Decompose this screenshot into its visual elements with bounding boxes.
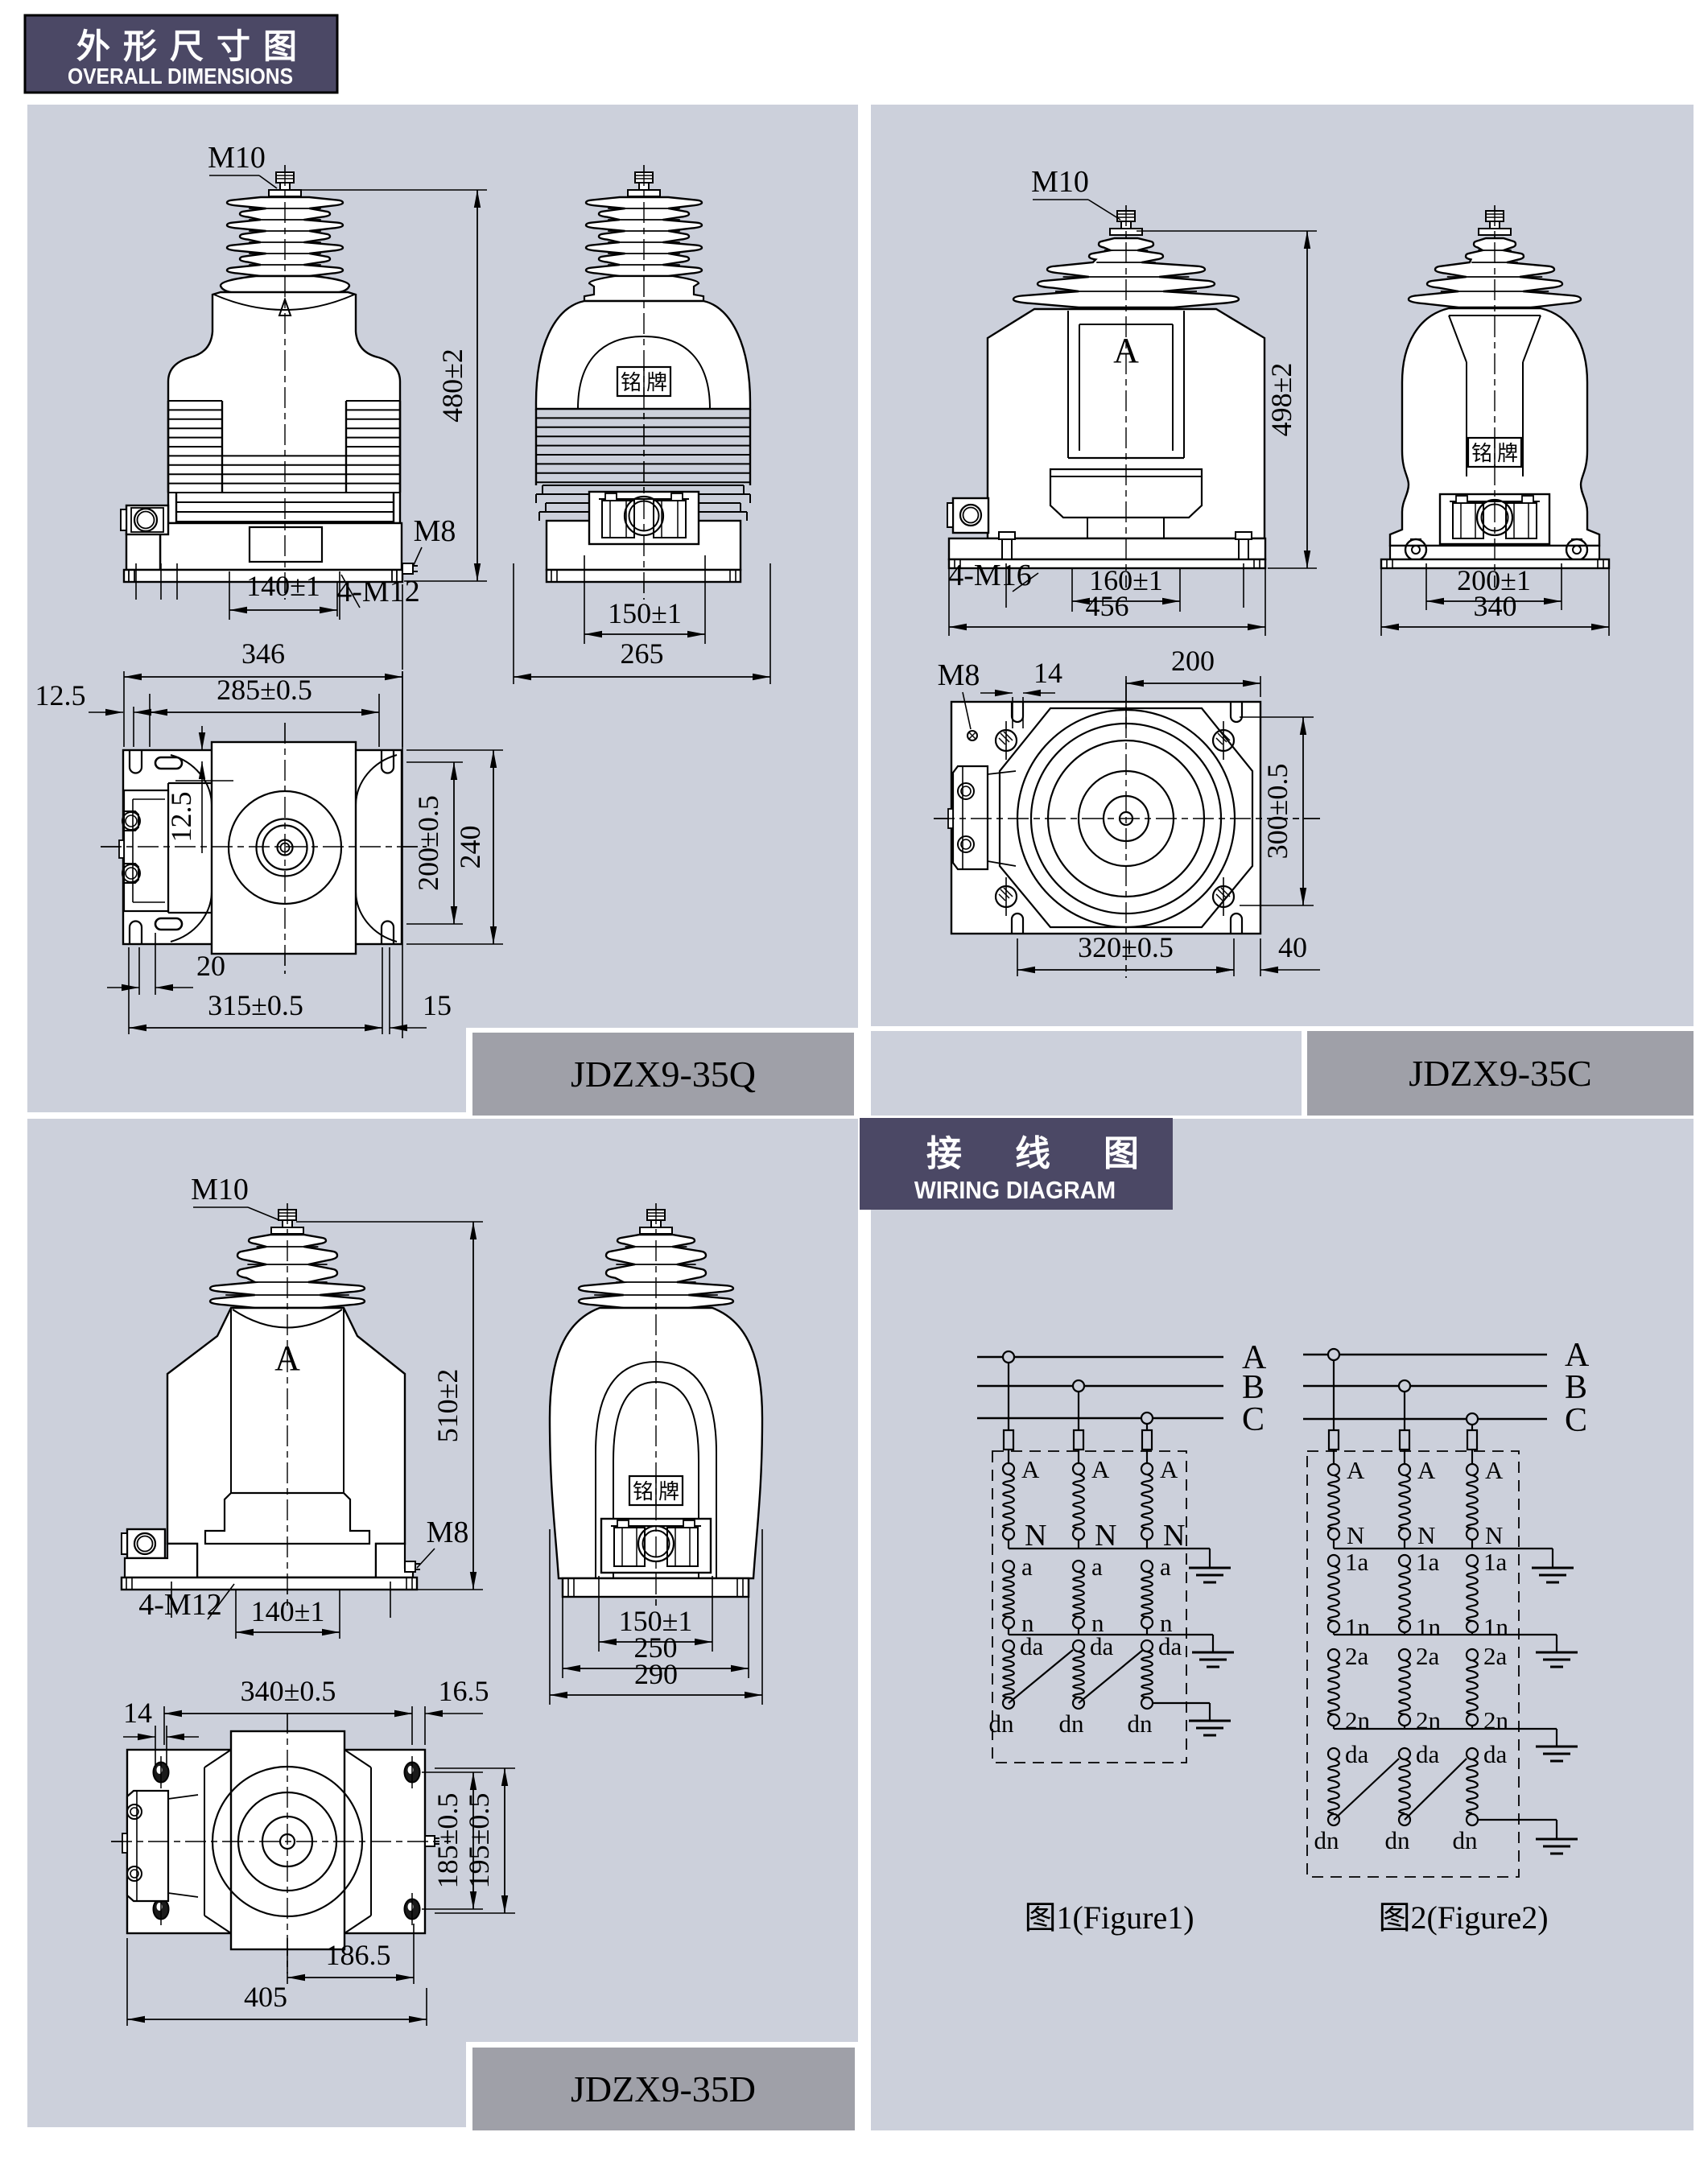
svg-text:195±0.5: 195±0.5 — [463, 1793, 495, 1889]
svg-text:15: 15 — [423, 989, 452, 1021]
svg-text:图2(Figure2): 图2(Figure2) — [1378, 1899, 1548, 1936]
svg-text:B: B — [1565, 1369, 1587, 1406]
svg-text:A: A — [1347, 1456, 1365, 1484]
svg-text:12.5: 12.5 — [35, 679, 86, 711]
svg-text:M8: M8 — [427, 1516, 469, 1549]
svg-text:40: 40 — [1278, 931, 1307, 963]
svg-text:12.5: 12.5 — [165, 792, 197, 843]
svg-text:2n: 2n — [1483, 1706, 1509, 1734]
svg-text:1n: 1n — [1416, 1613, 1442, 1641]
svg-text:JDZX9-35D: JDZX9-35D — [571, 2068, 756, 2110]
svg-text:285±0.5: 285±0.5 — [217, 674, 312, 706]
svg-text:300±0.5: 300±0.5 — [1261, 764, 1293, 860]
svg-text:A: A — [1417, 1456, 1436, 1484]
svg-text:2n: 2n — [1345, 1706, 1371, 1734]
svg-text:A: A — [1091, 1455, 1110, 1483]
svg-text:JDZX9-35Q: JDZX9-35Q — [571, 1054, 756, 1095]
svg-text:2a: 2a — [1345, 1642, 1369, 1670]
svg-text:铭: 铭 — [633, 1480, 654, 1503]
svg-text:接线图: 接线图 — [926, 1134, 1192, 1173]
svg-text:M10: M10 — [1031, 165, 1089, 199]
svg-text:405: 405 — [244, 1981, 287, 2013]
svg-text:牌: 牌 — [646, 371, 667, 394]
svg-text:M10: M10 — [191, 1173, 249, 1206]
svg-text:铭: 铭 — [621, 371, 642, 394]
svg-text:C: C — [1242, 1401, 1264, 1438]
svg-text:290: 290 — [634, 1658, 678, 1690]
svg-text:dn: dn — [1453, 1826, 1479, 1854]
svg-text:4-M12: 4-M12 — [336, 575, 419, 608]
svg-text:315±0.5: 315±0.5 — [208, 989, 303, 1021]
svg-text:200±0.5: 200±0.5 — [412, 795, 444, 891]
svg-text:186.5: 186.5 — [326, 1939, 391, 1971]
svg-text:dn: dn — [1128, 1710, 1153, 1738]
svg-text:da: da — [1345, 1740, 1369, 1768]
svg-text:14: 14 — [123, 1697, 152, 1729]
svg-text:M8: M8 — [938, 658, 980, 692]
svg-text:320±0.5: 320±0.5 — [1078, 931, 1174, 963]
svg-text:a: a — [1021, 1553, 1033, 1581]
svg-text:346: 346 — [241, 637, 285, 670]
svg-text:图1(Figure1): 图1(Figure1) — [1024, 1899, 1194, 1936]
svg-text:1a: 1a — [1345, 1548, 1369, 1576]
svg-text:dn: dn — [1059, 1710, 1085, 1738]
svg-text:2a: 2a — [1483, 1642, 1508, 1670]
svg-text:14: 14 — [1033, 657, 1062, 689]
svg-text:200: 200 — [1171, 645, 1215, 677]
svg-text:A: A — [1485, 1456, 1504, 1484]
svg-text:2n: 2n — [1416, 1706, 1442, 1734]
svg-text:A: A — [1160, 1455, 1178, 1483]
svg-text:N: N — [1485, 1521, 1503, 1549]
svg-text:N: N — [1417, 1521, 1435, 1549]
svg-text:2a: 2a — [1416, 1642, 1440, 1670]
svg-text:M8: M8 — [414, 514, 456, 548]
svg-text:20: 20 — [196, 950, 225, 982]
svg-text:da: da — [1158, 1632, 1182, 1660]
svg-text:1a: 1a — [1483, 1548, 1508, 1576]
svg-text:510±2: 510±2 — [431, 1369, 464, 1443]
svg-text:265: 265 — [621, 637, 664, 670]
svg-text:240: 240 — [454, 826, 486, 869]
svg-text:C: C — [1565, 1402, 1587, 1439]
svg-text:1n: 1n — [1345, 1613, 1371, 1641]
svg-text:N: N — [1347, 1521, 1364, 1549]
svg-text:牌: 牌 — [658, 1480, 679, 1503]
svg-text:外形尺寸图: 外形尺寸图 — [76, 27, 310, 65]
svg-text:480±2: 480±2 — [436, 349, 468, 423]
svg-text:456: 456 — [1086, 590, 1129, 622]
svg-text:340±0.5: 340±0.5 — [241, 1675, 336, 1707]
svg-text:M10: M10 — [208, 141, 266, 175]
svg-text:dn: dn — [1314, 1826, 1340, 1854]
svg-text:140±1: 140±1 — [246, 570, 320, 602]
svg-text:铭: 铭 — [1471, 442, 1492, 465]
svg-text:JDZX9-35C: JDZX9-35C — [1409, 1053, 1591, 1094]
svg-text:da: da — [1020, 1632, 1044, 1660]
svg-text:340: 340 — [1474, 590, 1517, 622]
svg-text:da: da — [1483, 1740, 1508, 1768]
svg-text:16.5: 16.5 — [439, 1675, 489, 1707]
svg-text:WIRING DIAGRAM: WIRING DIAGRAM — [914, 1177, 1116, 1204]
svg-text:da: da — [1090, 1632, 1114, 1660]
svg-text:1n: 1n — [1483, 1613, 1509, 1641]
svg-text:N: N — [1025, 1519, 1046, 1553]
svg-text:a: a — [1160, 1553, 1171, 1581]
svg-text:1a: 1a — [1416, 1548, 1440, 1576]
svg-text:N: N — [1095, 1519, 1116, 1553]
svg-text:da: da — [1416, 1740, 1440, 1768]
svg-text:牌: 牌 — [1497, 442, 1518, 465]
svg-text:dn: dn — [989, 1710, 1015, 1738]
svg-text:a: a — [1091, 1553, 1103, 1581]
svg-text:dn: dn — [1385, 1826, 1411, 1854]
svg-text:140±1: 140±1 — [251, 1595, 325, 1627]
svg-text:A: A — [1021, 1455, 1040, 1483]
svg-text:150±1: 150±1 — [608, 597, 682, 629]
svg-text:185±0.5: 185±0.5 — [431, 1793, 464, 1889]
svg-text:498±2: 498±2 — [1265, 363, 1298, 437]
svg-text:OVERALL DIMENSIONS: OVERALL DIMENSIONS — [68, 64, 293, 89]
svg-text:N: N — [1163, 1519, 1185, 1553]
